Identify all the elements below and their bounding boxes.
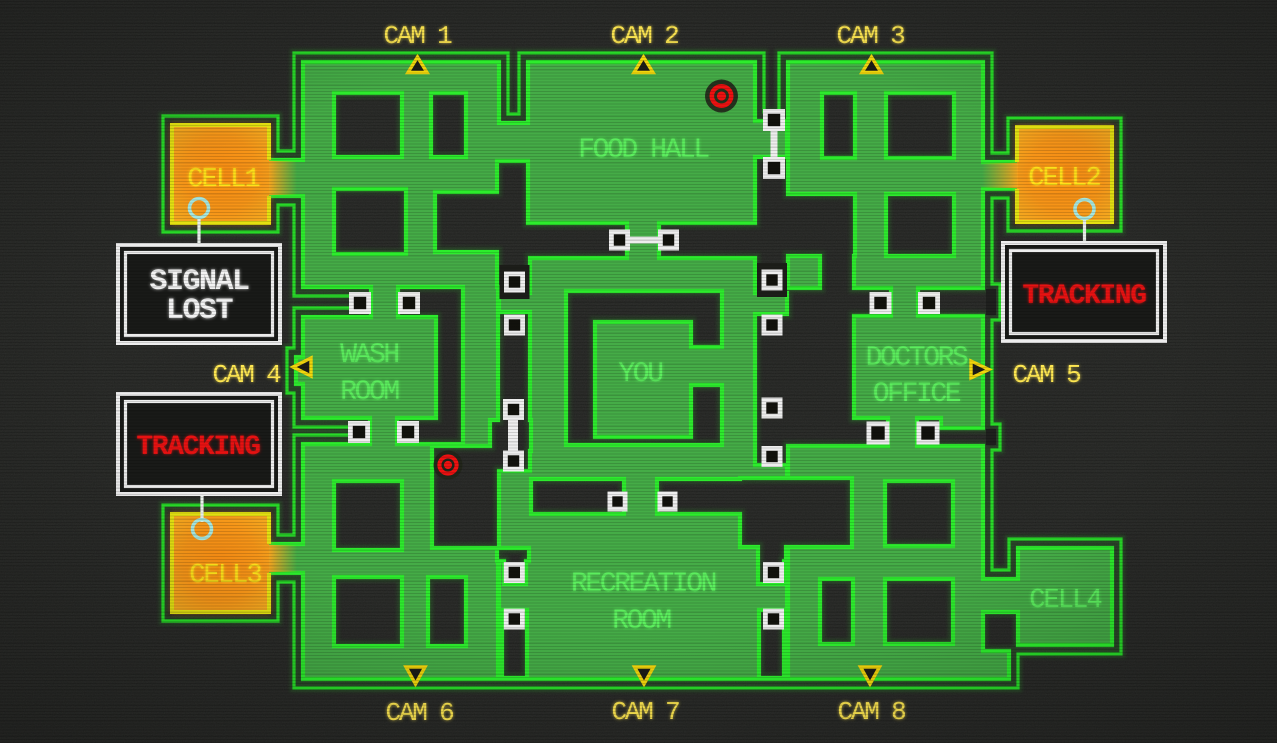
svg-text:CAM 2: CAM 2 [610, 21, 678, 51]
svg-text:CAM 7: CAM 7 [611, 697, 679, 727]
svg-text:CAM 3: CAM 3 [836, 21, 904, 51]
svg-text:TRACKING: TRACKING [136, 432, 260, 463]
svg-text:CAM 8: CAM 8 [837, 697, 905, 727]
svg-text:ROOM: ROOM [612, 606, 671, 637]
svg-text:CELL3: CELL3 [189, 561, 261, 591]
svg-text:CELL2: CELL2 [1028, 164, 1100, 194]
svg-text:CAM 4: CAM 4 [212, 360, 281, 390]
svg-text:WASH: WASH [340, 340, 398, 371]
svg-text:LOST: LOST [166, 294, 234, 328]
svg-text:FOOD HALL: FOOD HALL [578, 135, 709, 166]
svg-text:CAM 1: CAM 1 [383, 21, 452, 51]
svg-text:YOU: YOU [618, 359, 662, 390]
svg-text:CELL1: CELL1 [187, 165, 259, 195]
svg-text:CAM 6: CAM 6 [385, 698, 453, 728]
svg-text:TRACKING: TRACKING [1022, 281, 1146, 312]
svg-text:OFFICE: OFFICE [873, 379, 961, 410]
svg-text:CELL4: CELL4 [1029, 586, 1101, 616]
svg-text:DOCTORS: DOCTORS [866, 343, 968, 374]
svg-text:RECREATION: RECREATION [571, 569, 716, 600]
svg-text:CAM 5: CAM 5 [1012, 360, 1080, 390]
svg-text:ROOM: ROOM [340, 377, 399, 408]
